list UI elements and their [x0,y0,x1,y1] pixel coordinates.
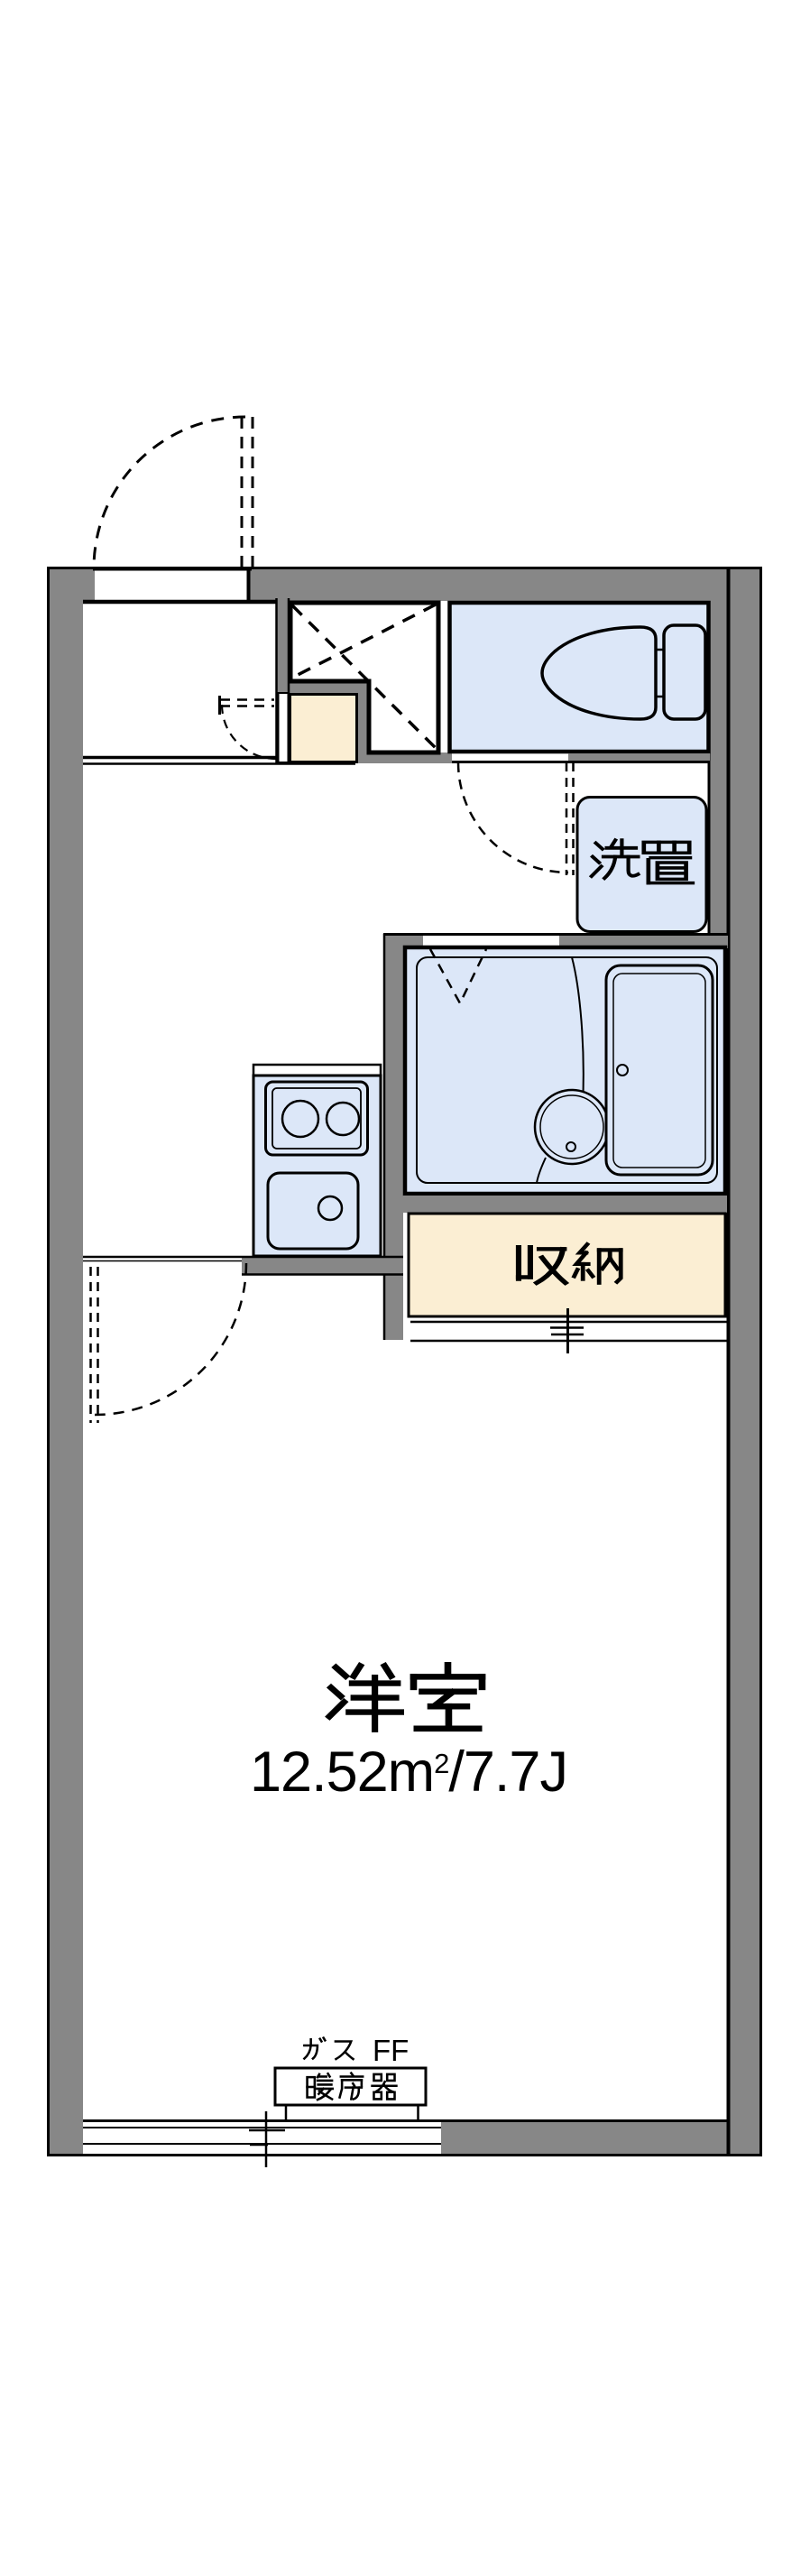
svg-text:12.52m2/7.7J: 12.52m2/7.7J [250,1740,567,1804]
svg-text:FF: FF [373,2034,409,2067]
